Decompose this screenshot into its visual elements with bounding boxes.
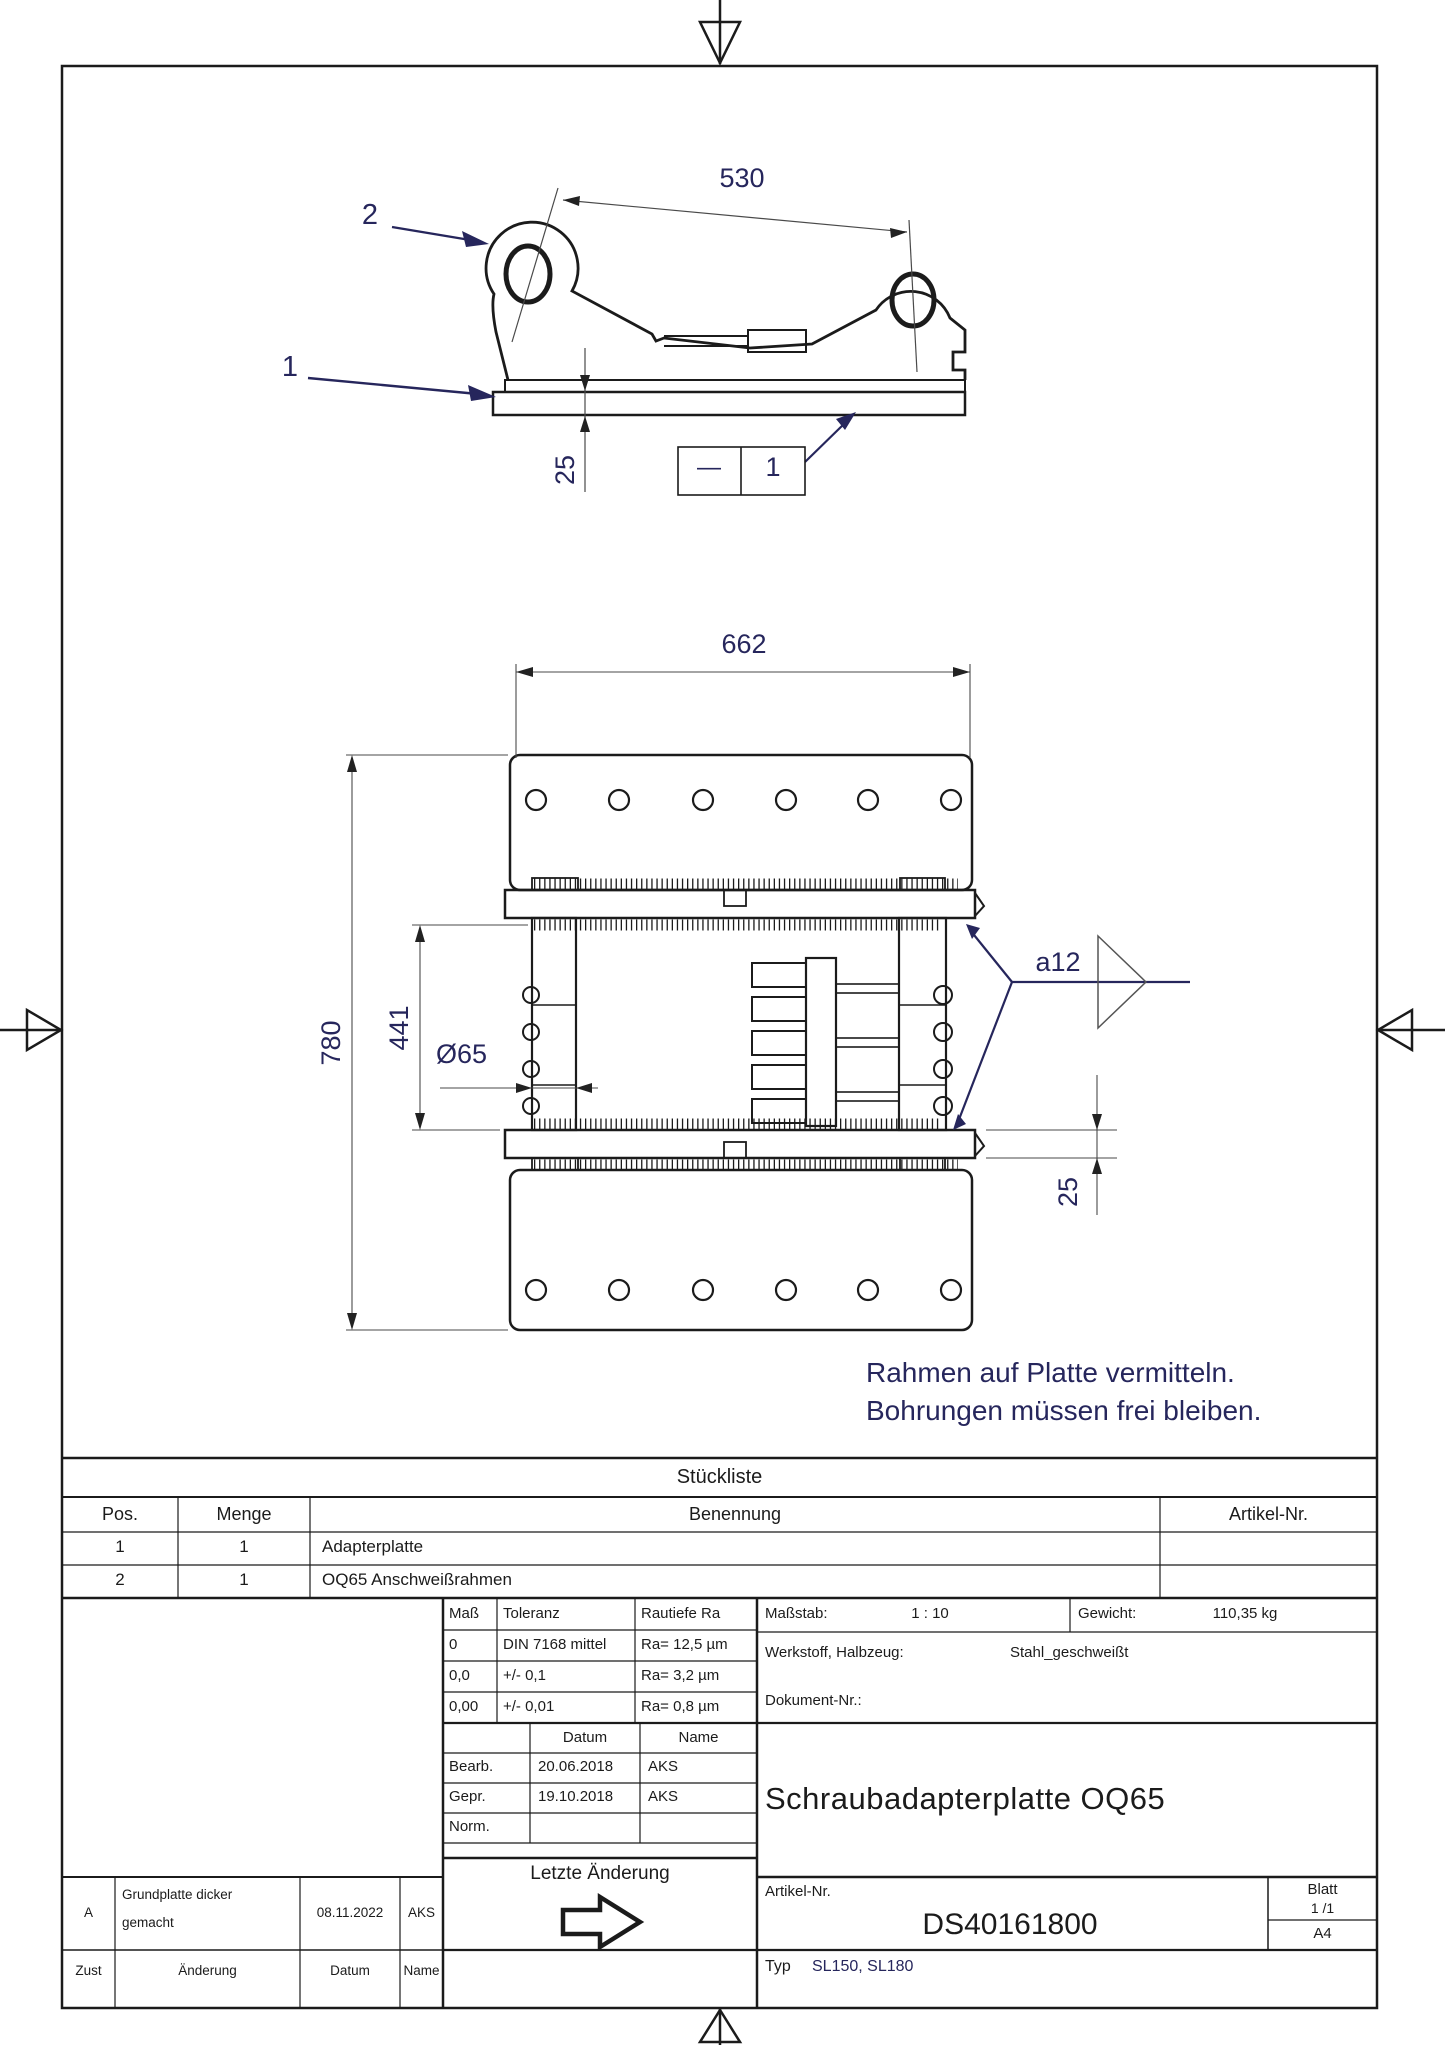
note-line-1: Rahmen auf Platte vermitteln. <box>866 1358 1235 1389</box>
sign-row-datum: 20.06.2018 <box>538 1759 613 1776</box>
sign-row-label: Norm. <box>449 1819 490 1836</box>
blatt-label: Blatt <box>1268 1882 1377 1899</box>
dim-662: 662 <box>692 630 796 660</box>
blatt-value: 1 /1 <box>1268 1901 1377 1916</box>
sign-row-label: Gepr. <box>449 1789 486 1806</box>
werkstoff-value: Stahl_geschweißt <box>1010 1645 1128 1662</box>
side-view-geometry <box>486 222 965 415</box>
revision-aenderung-line2: gemacht <box>122 1916 174 1931</box>
dim-530: 530 <box>690 164 794 194</box>
note-line-2: Bohrungen müssen frei bleiben. <box>866 1396 1261 1427</box>
format-label: A4 <box>1268 1926 1377 1943</box>
sign-header-name: Name <box>640 1730 757 1747</box>
letzte-aenderung-label: Letzte Änderung <box>460 1864 740 1885</box>
balloon-label-2: 2 <box>352 200 388 232</box>
parts-list-row-menge: 1 <box>178 1538 310 1557</box>
parts-list-header-pos: Pos. <box>62 1505 178 1525</box>
sign-row-label: Bearb. <box>449 1759 493 1776</box>
werkstoff-label: Werkstoff, Halbzeug: <box>765 1645 904 1662</box>
tol-row-toleranz: +/- 0,1 <box>503 1668 546 1685</box>
plan-view-dimensions <box>346 664 1117 1330</box>
parts-list-row-pos: 1 <box>62 1538 178 1557</box>
sign-row-name: AKS <box>648 1759 678 1776</box>
parts-list-header-menge: Menge <box>178 1505 310 1525</box>
plan-view-geometry <box>505 755 984 1330</box>
tol-row-rautiefe: Ra= 3,2 µm <box>641 1668 719 1685</box>
revision-name-value: AKS <box>400 1906 443 1921</box>
weld-tag-number: 1 <box>748 453 798 483</box>
centering-mark-top-icon <box>700 0 740 64</box>
title-block-lines <box>62 1598 1377 2008</box>
typ-label: Typ <box>765 1958 791 1976</box>
parts-list-header-artikel: Artikel-Nr. <box>1160 1505 1377 1525</box>
tol-header-toleranz: Toleranz <box>503 1606 560 1623</box>
dim-d65: Ø65 <box>436 1040 487 1070</box>
drawing-title: Schraubadapterplatte OQ65 <box>765 1782 1165 1816</box>
dim-25-side: 25 <box>551 438 581 502</box>
tol-header-mass: Maß <box>449 1606 479 1623</box>
parts-list-row-pos: 2 <box>62 1571 178 1590</box>
revision-header-aenderung: Änderung <box>115 1964 300 1979</box>
tol-row-toleranz: DIN 7168 mittel <box>503 1637 606 1654</box>
sign-row-name: AKS <box>648 1789 678 1806</box>
centering-mark-left-icon <box>0 1010 62 1050</box>
dim-780: 780 <box>317 1011 347 1075</box>
dim-25-plan: 25 <box>1054 1160 1084 1224</box>
artikel-label: Artikel-Nr. <box>765 1884 831 1901</box>
weld-tag-dash: — <box>684 455 734 481</box>
tol-row-mass: 0 <box>449 1637 457 1654</box>
revision-aenderung-line1: Grundplatte dicker <box>122 1888 232 1903</box>
last-change-arrow-icon <box>563 1897 640 1947</box>
parts-list-row-benennung: Adapterplatte <box>322 1538 423 1557</box>
revision-header-name: Name <box>400 1964 443 1979</box>
parts-list-row-menge: 1 <box>178 1571 310 1590</box>
parts-list-title: Stückliste <box>62 1466 1377 1488</box>
tol-header-rautiefe: Rautiefe Ra <box>641 1606 720 1623</box>
centering-mark-right-icon <box>1377 1010 1445 1050</box>
sign-header-datum: Datum <box>530 1730 640 1747</box>
gewicht-label: Gewicht: <box>1078 1606 1136 1623</box>
parts-list-row-benennung: OQ65 Anschweißrahmen <box>322 1571 512 1590</box>
revision-header-zust: Zust <box>62 1964 115 1979</box>
balloon-label-1: 1 <box>272 352 308 384</box>
revision-header-datum: Datum <box>300 1964 400 1979</box>
weld-a12-label: a12 <box>1022 948 1094 978</box>
dim-441: 441 <box>385 996 415 1060</box>
tol-row-mass: 0,0 <box>449 1668 470 1685</box>
massstab-value: 1 : 10 <box>850 1606 1010 1623</box>
revision-zust-value: A <box>62 1906 115 1921</box>
sign-row-datum: 19.10.2018 <box>538 1789 613 1806</box>
tol-row-rautiefe: Ra= 0,8 µm <box>641 1699 719 1716</box>
massstab-label: Maßstab: <box>765 1606 828 1623</box>
tol-row-toleranz: +/- 0,01 <box>503 1699 554 1716</box>
centering-mark-bottom-icon <box>700 2008 740 2045</box>
revision-datum-value: 08.11.2022 <box>300 1906 400 1921</box>
dokument-label: Dokument-Nr.: <box>765 1693 862 1710</box>
drawing-sheet: 2 1 530 25 — 1 662 780 441 Ø65 a12 25 Ra… <box>0 0 1445 2045</box>
tol-row-rautiefe: Ra= 12,5 µm <box>641 1637 728 1654</box>
parts-list-header-benennung: Benennung <box>310 1505 1160 1525</box>
artikel-number: DS40161800 <box>800 1908 1220 1941</box>
gewicht-value: 110,35 kg <box>1160 1606 1330 1623</box>
sheet-frame <box>62 66 1377 2008</box>
tol-row-mass: 0,00 <box>449 1699 478 1716</box>
typ-value: SL150, SL180 <box>812 1958 913 1976</box>
